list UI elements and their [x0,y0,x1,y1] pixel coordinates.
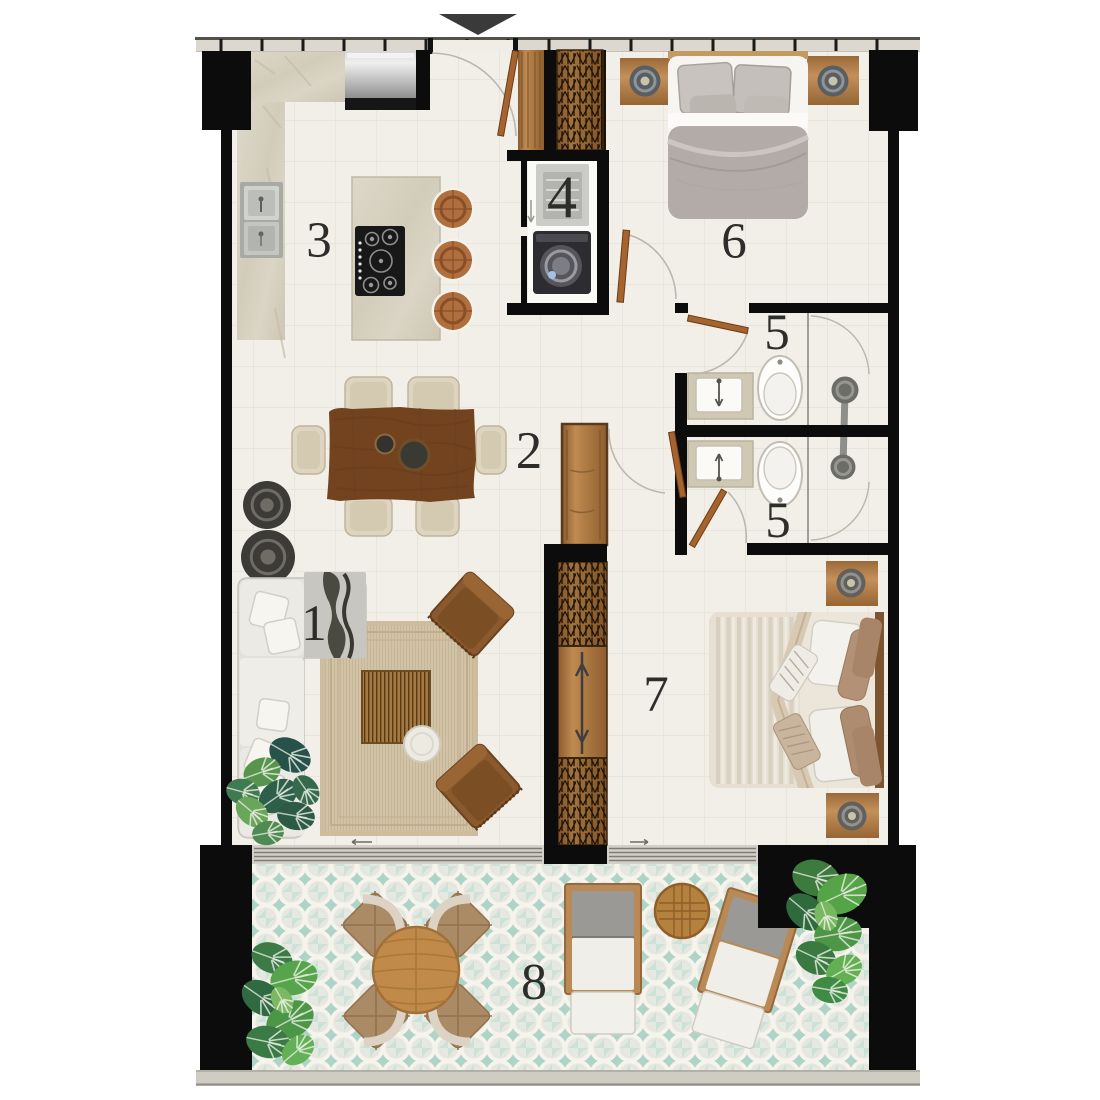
svg-text:8: 8 [521,954,547,1011]
svg-text:5: 5 [764,305,790,361]
svg-text:5: 5 [765,493,791,549]
svg-text:2: 2 [516,422,543,480]
svg-text:6: 6 [721,214,747,270]
svg-text:3: 3 [306,213,332,269]
svg-text:7: 7 [643,667,669,723]
svg-text:1: 1 [301,596,327,652]
svg-text:4: 4 [547,164,577,230]
